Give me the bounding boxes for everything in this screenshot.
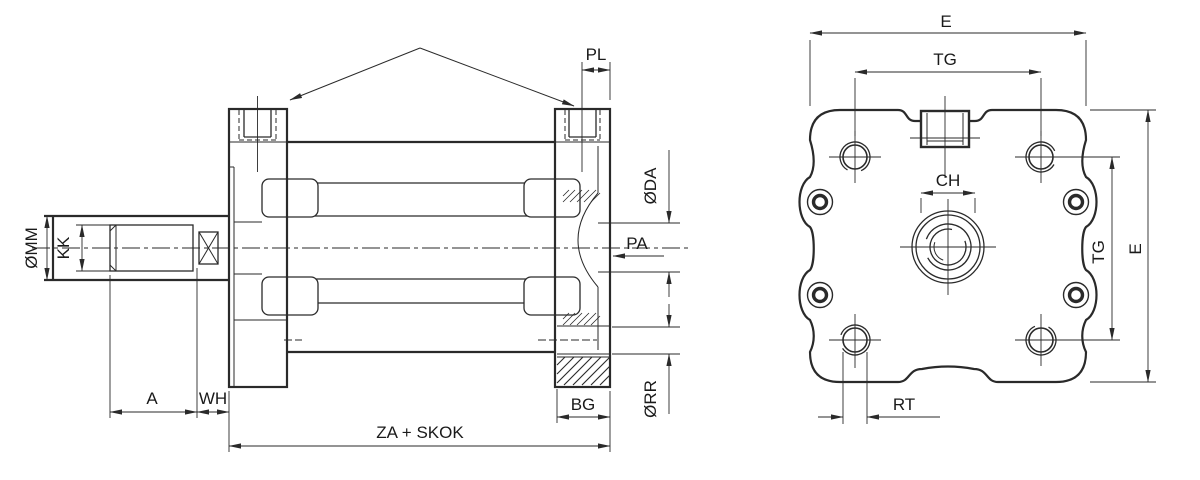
dim-label-a: A bbox=[146, 389, 158, 408]
dim-label-tg-top: TG bbox=[933, 50, 957, 69]
dim-label-da: ØDA bbox=[641, 167, 660, 205]
bushing-cartridges bbox=[262, 179, 580, 315]
cylinder-barrel bbox=[287, 142, 555, 352]
dim-label-kk: KK bbox=[54, 236, 73, 259]
dim-label-za-skok: ZA + SKOK bbox=[376, 423, 464, 442]
dim-label-bg: BG bbox=[571, 395, 596, 414]
dim-label-e-top: E bbox=[940, 12, 951, 31]
dim-label-e-side: E bbox=[1126, 243, 1145, 254]
dim-label-pa: PA bbox=[626, 234, 648, 253]
center-recess-arc bbox=[578, 193, 598, 287]
air-port-right bbox=[565, 62, 600, 172]
side-view-dimensions: PL ØMM KK A WH ZA + SKOK BG bbox=[22, 45, 680, 452]
dim-label-pl: PL bbox=[586, 45, 607, 64]
dim-label-tg-side: TG bbox=[1089, 240, 1108, 264]
dim-label-rr: ØRR bbox=[641, 380, 660, 418]
dim-label-rt: RT bbox=[893, 395, 915, 414]
drawing-page: PL ØMM KK A WH ZA + SKOK BG bbox=[0, 0, 1200, 480]
dim-label-mm: ØMM bbox=[22, 227, 41, 269]
side-section-view: PL ØMM KK A WH ZA + SKOK BG bbox=[22, 45, 688, 452]
air-port-left bbox=[239, 96, 276, 172]
port-leader-lines bbox=[290, 48, 574, 106]
foot-section-hatch bbox=[557, 357, 610, 385]
rod-end-cap bbox=[229, 96, 302, 387]
technical-drawing-canvas: PL ØMM KK A WH ZA + SKOK BG bbox=[0, 0, 1200, 480]
end-view: E TG CH TG E RT bbox=[800, 12, 1157, 424]
dim-label-wh: WH bbox=[199, 389, 227, 408]
rear-end-cap bbox=[538, 62, 610, 387]
dim-label-ch: CH bbox=[936, 171, 961, 190]
